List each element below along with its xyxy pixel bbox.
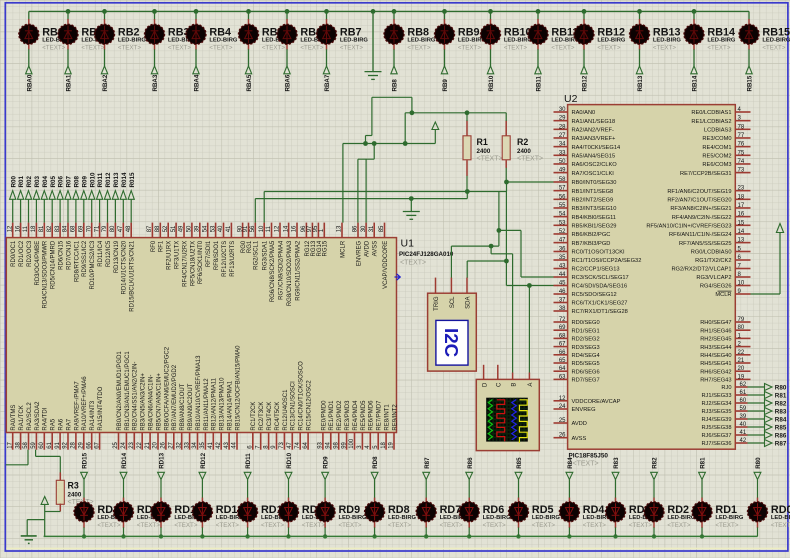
- svg-text:RD15/BCLK/U1RTS/CN21: RD15/BCLK/U1RTS/CN21: [130, 240, 136, 312]
- svg-text:RG6/CN8/SCK2/PMA5: RG6/CN8/SCK2/PMA5: [270, 240, 276, 302]
- svg-text:61: 61: [47, 441, 53, 448]
- svg-text:LED-BIRG: LED-BIRG: [388, 515, 417, 521]
- svg-text:<TEXT>: <TEXT>: [532, 522, 555, 529]
- svg-text:RD15: RD15: [82, 452, 89, 468]
- svg-text:RD7: RD7: [440, 504, 462, 516]
- svg-text:RD0/SEG0: RD0/SEG0: [572, 320, 600, 326]
- svg-text:RB5/CN7/AN5/C1IN+: RB5/CN7/AN5/C1IN+: [156, 373, 162, 431]
- svg-text:RA2/AN2/VREF-: RA2/AN2/VREF-: [572, 128, 614, 134]
- svg-text:RC15/CN12/OSC2: RC15/CN12/OSC2: [307, 380, 313, 431]
- svg-text:RB12: RB12: [582, 75, 589, 91]
- svg-text:RB13: RB13: [637, 75, 644, 91]
- svg-text:RD1/SEG1: RD1/SEG1: [572, 328, 600, 334]
- svg-text:12: 12: [275, 225, 281, 232]
- svg-text:RA15/INT4/TDO: RA15/INT4/TDO: [98, 386, 104, 430]
- svg-text:12: 12: [559, 396, 566, 402]
- svg-text:RC1/T1OSI/CCP2A/SEG32: RC1/T1OSI/CCP2A/SEG32: [572, 258, 642, 264]
- svg-text:RG7/CN9/SDI2/PMA4: RG7/CN9/SDI2/PMA4: [278, 240, 284, 300]
- svg-text:12: 12: [7, 225, 13, 232]
- svg-text:<TEXT>: <TEXT>: [339, 522, 362, 529]
- svg-text:RH0/SEG47: RH0/SEG47: [700, 320, 731, 326]
- svg-text:61: 61: [740, 390, 747, 396]
- svg-text:49: 49: [179, 225, 185, 232]
- svg-text:29: 29: [79, 441, 85, 448]
- svg-text:RB7/KBI3/PGD: RB7/KBI3/PGD: [572, 241, 611, 247]
- svg-text:56: 56: [250, 225, 256, 232]
- svg-text:RF2/U1RX: RF2/U1RX: [167, 241, 173, 270]
- svg-text:RF1: RF1: [159, 240, 165, 252]
- svg-text:26: 26: [559, 433, 566, 439]
- svg-text:R3: R3: [68, 481, 79, 491]
- svg-text:RG1/TX2/CK2: RG1/TX2/CK2: [695, 258, 731, 264]
- svg-text:<TEXT>: <TEXT>: [81, 45, 104, 52]
- svg-text:U1: U1: [401, 238, 415, 250]
- svg-text:RF1/AN6/C2OUT/SEG19: RF1/AN6/C2OUT/SEG19: [667, 189, 731, 195]
- svg-text:RJ3/SEG35: RJ3/SEG35: [701, 409, 731, 415]
- svg-text:36: 36: [559, 247, 566, 253]
- svg-text:AVDD: AVDD: [365, 240, 371, 257]
- svg-text:RB10/AN10/CVREF/PMA13: RB10/AN10/CVREF/PMA13: [196, 355, 202, 431]
- svg-text:76: 76: [738, 142, 745, 148]
- svg-text:<TEXT>: <TEXT>: [300, 45, 323, 52]
- svg-text:LCDBIAS3: LCDBIAS3: [704, 128, 732, 134]
- svg-text:R011: R011: [97, 172, 104, 187]
- svg-text:RC13/CN1/SOSCI: RC13/CN1/SOSCI: [291, 381, 297, 431]
- svg-text:RC14/CN0/T1CK/SOSCO: RC14/CN0/T1CK/SOSCO: [299, 361, 305, 431]
- svg-text:<TEXT>: <TEXT>: [97, 522, 120, 529]
- svg-text:R02: R02: [26, 175, 33, 187]
- svg-text:RB4/CN6/AN4/C1IN-: RB4/CN6/AN4/C1IN-: [149, 375, 155, 431]
- svg-text:RB9: RB9: [458, 26, 480, 38]
- svg-text:91: 91: [55, 441, 61, 448]
- svg-text:74: 74: [295, 441, 301, 448]
- svg-text:R87: R87: [775, 440, 787, 447]
- svg-text:RD3/OC4/PMBE: RD3/OC4/PMBE: [35, 241, 41, 286]
- svg-text:RH5/SEG41: RH5/SEG41: [700, 361, 731, 367]
- svg-text:RA6: RA6: [59, 418, 65, 430]
- svg-text:RE0/PMD0: RE0/PMD0: [321, 400, 327, 431]
- svg-text:VCAP/VDDCORE: VCAP/VDDCORE: [383, 241, 389, 289]
- svg-text:99: 99: [341, 441, 347, 448]
- svg-text:14: 14: [283, 225, 289, 232]
- svg-text:45: 45: [559, 281, 566, 287]
- svg-text:LED-BIRG: LED-BIRG: [667, 515, 696, 521]
- svg-text:PIC24FJ128GA010: PIC24FJ128GA010: [399, 251, 454, 258]
- svg-text:VDDCORE/AVCAP: VDDCORE/AVCAP: [572, 399, 621, 405]
- svg-text:<TEXT>: <TEXT>: [261, 522, 284, 529]
- svg-text:RG2/SCL1: RG2/SCL1: [254, 240, 260, 270]
- svg-text:RD4/SEG4: RD4/SEG4: [572, 353, 600, 359]
- svg-text:21: 21: [738, 358, 745, 364]
- svg-text:55: 55: [559, 203, 566, 209]
- svg-text:RB7: RB7: [340, 26, 362, 38]
- svg-text:RE5/COM2: RE5/COM2: [702, 154, 731, 160]
- svg-text:RB3/INT3/SEG10: RB3/INT3/SEG10: [572, 206, 617, 212]
- svg-text:RE6/PMD6: RE6/PMD6: [369, 400, 375, 431]
- svg-text:RD8: RD8: [372, 456, 379, 469]
- svg-text:RD9: RD9: [323, 456, 330, 469]
- svg-text:RA3/SDA2: RA3/SDA2: [35, 401, 41, 431]
- svg-text:20: 20: [738, 366, 745, 372]
- svg-text:17: 17: [7, 441, 13, 448]
- svg-text:RH2/SEG45: RH2/SEG45: [700, 337, 731, 343]
- svg-text:62: 62: [740, 382, 747, 388]
- svg-text:40: 40: [740, 422, 747, 428]
- svg-text:<TEXT>: <TEXT>: [209, 45, 232, 52]
- svg-text:91: 91: [243, 225, 249, 232]
- svg-text:47: 47: [118, 225, 124, 232]
- svg-text:28: 28: [71, 441, 77, 448]
- svg-text:RC0/T1OSO/T13CKI: RC0/T1OSO/T13CKI: [572, 250, 626, 256]
- svg-text:RE5/PMD5: RE5/PMD5: [361, 400, 367, 431]
- svg-text:82: 82: [47, 225, 53, 232]
- svg-text:72: 72: [559, 317, 566, 323]
- svg-text:<TEXT>: <TEXT>: [551, 45, 574, 52]
- svg-text:D: D: [482, 382, 488, 387]
- svg-text:13: 13: [738, 238, 745, 244]
- svg-text:<TEXT>: <TEXT>: [458, 45, 481, 52]
- svg-text:RD8: RD8: [388, 504, 410, 516]
- svg-text:<TEXT>: <TEXT>: [667, 522, 690, 529]
- svg-text:RD14: RD14: [121, 452, 128, 468]
- svg-text:<TEXT>: <TEXT>: [216, 522, 239, 529]
- svg-text:RB15: RB15: [762, 26, 790, 38]
- svg-text:RD14/U1CTS/CN20: RD14/U1CTS/CN20: [122, 240, 128, 294]
- svg-text:R80: R80: [755, 457, 762, 469]
- svg-text:RF8/SDO1: RF8/SDO1: [214, 240, 220, 270]
- svg-text:RF2/AN7/C1OUT/SEG20: RF2/AN7/C1OUT/SEG20: [667, 198, 731, 204]
- svg-text:LED-BIRG: LED-BIRG: [532, 515, 561, 521]
- svg-text:RA5: RA5: [51, 418, 57, 430]
- svg-text:65: 65: [559, 358, 566, 364]
- svg-text:AVSS: AVSS: [572, 436, 587, 442]
- svg-text:RE0/LCDBIAS1: RE0/LCDBIAS1: [691, 110, 731, 116]
- svg-text:58: 58: [23, 441, 29, 448]
- svg-text:RD2/SEG2: RD2/SEG2: [572, 337, 600, 343]
- svg-text:RC4/T5CK: RC4/T5CK: [275, 402, 281, 431]
- svg-text:<TEXT>: <TEXT>: [653, 45, 676, 52]
- svg-text:86: 86: [353, 225, 359, 232]
- svg-text:RB13/AN13/PMA10: RB13/AN13/PMA10: [220, 377, 226, 431]
- svg-text:RB5/KBI1/SEG29: RB5/KBI1/SEG29: [572, 224, 617, 230]
- svg-text:80: 80: [110, 225, 116, 232]
- svg-text:LED-BIRG: LED-BIRG: [209, 38, 238, 44]
- svg-text:RB11: RB11: [536, 75, 543, 91]
- svg-text:68: 68: [71, 225, 77, 232]
- svg-text:RJ5/SEG38: RJ5/SEG38: [701, 425, 731, 431]
- svg-text:35: 35: [200, 441, 206, 448]
- svg-text:<TEXT>: <TEXT>: [168, 45, 191, 52]
- svg-text:78: 78: [738, 124, 745, 130]
- svg-text:69: 69: [559, 325, 566, 331]
- svg-text:<TEXT>: <TEXT>: [340, 45, 363, 52]
- svg-text:RC1/T2CK: RC1/T2CK: [251, 402, 257, 431]
- svg-text:<TEXT>: <TEXT>: [477, 156, 503, 163]
- svg-text:RJ0: RJ0: [721, 385, 731, 391]
- svg-text:50: 50: [559, 159, 566, 165]
- svg-text:RC7/RX1/DT1/SEG28: RC7/RX1/DT1/SEG28: [572, 309, 628, 315]
- svg-text:60: 60: [39, 441, 45, 448]
- svg-text:41: 41: [740, 430, 747, 436]
- svg-text:<TEXT>: <TEXT>: [707, 45, 730, 52]
- svg-text:RD13: RD13: [159, 452, 166, 468]
- svg-text:<TEXT>: <TEXT>: [388, 522, 411, 529]
- svg-text:R08: R08: [74, 175, 81, 187]
- svg-text:R06: R06: [58, 175, 65, 187]
- svg-text:R81: R81: [700, 457, 707, 469]
- svg-text:LED-BIRG: LED-BIRG: [339, 515, 368, 521]
- svg-text:R84: R84: [567, 457, 574, 469]
- svg-text:RG3/VLCAP2: RG3/VLCAP2: [696, 275, 731, 281]
- svg-text:RB4/KBI0/SEG11: RB4/KBI0/SEG11: [572, 215, 616, 221]
- svg-text:B: B: [511, 383, 517, 387]
- svg-text:33: 33: [559, 150, 566, 156]
- svg-text:21: 21: [145, 441, 151, 448]
- svg-text:RG1: RG1: [247, 240, 253, 253]
- svg-text:68: 68: [559, 333, 566, 339]
- svg-text:RF7/AN5/SS/SEG25: RF7/AN5/SS/SEG25: [679, 241, 731, 247]
- svg-text:R85: R85: [775, 424, 787, 431]
- svg-text:53: 53: [210, 225, 216, 232]
- svg-text:RE3/COM0: RE3/COM0: [702, 136, 731, 142]
- svg-text:<TEXT>: <TEXT>: [440, 522, 463, 529]
- svg-text:70: 70: [86, 225, 92, 232]
- svg-text:77: 77: [738, 133, 745, 139]
- svg-text:79: 79: [102, 225, 108, 232]
- svg-text:RBA2: RBA2: [102, 74, 109, 91]
- svg-text:41: 41: [226, 225, 232, 232]
- svg-text:R86: R86: [467, 457, 474, 469]
- svg-text:A: A: [528, 383, 534, 387]
- svg-text:RG9/CN11/SS2/PMA2: RG9/CN11/SS2/PMA2: [295, 240, 301, 301]
- svg-text:RB1/CN3/AN1/EMUC1/PGC1: RB1/CN3/AN1/EMUC1/PGC1: [125, 351, 131, 431]
- svg-text:11: 11: [23, 225, 29, 232]
- svg-text:R87: R87: [424, 457, 431, 469]
- svg-text:RB12/AN12/PMA11: RB12/AN12/PMA11: [212, 377, 218, 430]
- svg-text:RD5/CN14/PMRD: RD5/CN14/PMRD: [51, 240, 57, 289]
- svg-text:RA10/VREF+/PMA6: RA10/VREF+/PMA6: [82, 376, 88, 431]
- svg-text:RE1/PMD1: RE1/PMD1: [329, 400, 335, 431]
- svg-text:<TEXT>: <TEXT>: [715, 522, 738, 529]
- svg-text:R07: R07: [66, 175, 73, 187]
- svg-text:<TEXT>: <TEXT>: [137, 522, 160, 529]
- svg-text:RJ4/SEG39: RJ4/SEG39: [701, 417, 731, 423]
- svg-text:R82: R82: [775, 400, 787, 407]
- svg-text:57: 57: [559, 186, 566, 192]
- svg-text:RBA0: RBA0: [26, 74, 33, 91]
- svg-text:RB14: RB14: [707, 26, 735, 38]
- svg-text:RB14: RB14: [692, 75, 699, 91]
- svg-text:RD10: RD10: [286, 452, 293, 468]
- svg-text:24: 24: [121, 441, 127, 448]
- svg-text:LED-BIRG: LED-BIRG: [340, 38, 369, 44]
- svg-text:R82: R82: [652, 457, 659, 469]
- svg-text:RB10: RB10: [488, 75, 495, 91]
- svg-text:R01: R01: [18, 175, 25, 187]
- svg-text:RD5/SEG5: RD5/SEG5: [572, 361, 600, 367]
- svg-text:64: 64: [559, 366, 566, 372]
- svg-text:<TEXT>: <TEXT>: [42, 45, 65, 52]
- svg-text:100: 100: [349, 438, 355, 449]
- svg-text:<TEXT>: <TEXT>: [597, 45, 620, 52]
- svg-text:RB15/CN12/OCFB/AN15/PMA0: RB15/CN12/OCFB/AN15/PMA0: [235, 345, 241, 431]
- svg-text:20: 20: [153, 441, 159, 448]
- svg-text:RA5/AN4/SEG15: RA5/AN4/SEG15: [572, 154, 616, 160]
- svg-text:75: 75: [738, 150, 745, 156]
- svg-text:34: 34: [192, 441, 198, 448]
- svg-text:56: 56: [559, 194, 566, 200]
- svg-text:LED-BIRG: LED-BIRG: [597, 38, 626, 44]
- svg-text:RE7/CCP2B/SEG31: RE7/CCP2B/SEG31: [680, 171, 732, 177]
- svg-text:44: 44: [559, 272, 566, 278]
- svg-text:RA1/AN1/SEG18: RA1/AN1/SEG18: [572, 119, 616, 125]
- svg-text:RJ2/SEG34: RJ2/SEG34: [701, 401, 731, 407]
- svg-text:50: 50: [187, 225, 193, 232]
- svg-text:38: 38: [15, 441, 21, 448]
- svg-text:67: 67: [94, 441, 100, 448]
- svg-text:19: 19: [738, 374, 745, 380]
- svg-text:29: 29: [559, 116, 566, 122]
- svg-text:73: 73: [279, 441, 285, 448]
- svg-text:RB2: RB2: [118, 26, 140, 38]
- svg-text:RD6/CN15: RD6/CN15: [59, 240, 65, 270]
- svg-text:PIC18F85J50: PIC18F85J50: [569, 453, 609, 460]
- svg-text:RF13/U2RTS: RF13/U2RTS: [230, 241, 236, 277]
- svg-text:60: 60: [740, 398, 747, 404]
- svg-text:LED-BIRG: LED-BIRG: [504, 38, 533, 44]
- svg-text:11: 11: [266, 225, 272, 232]
- svg-text:92: 92: [63, 441, 69, 448]
- svg-text:RE1/LCDBIAS2: RE1/LCDBIAS2: [691, 119, 731, 125]
- svg-text:C: C: [497, 382, 503, 387]
- svg-text:R2: R2: [517, 137, 528, 147]
- svg-text:53: 53: [559, 220, 566, 226]
- svg-text:RH3/SEG44: RH3/SEG44: [700, 345, 731, 351]
- svg-text:AVSS: AVSS: [373, 241, 379, 257]
- svg-text:R013: R013: [113, 172, 120, 188]
- svg-text:40: 40: [218, 225, 224, 232]
- svg-text:<TEXT>: <TEXT>: [573, 461, 599, 468]
- svg-text:16: 16: [738, 212, 745, 218]
- svg-text:48: 48: [126, 225, 132, 232]
- svg-text:RC5/SDO/SEG12: RC5/SDO/SEG12: [572, 292, 617, 298]
- svg-text:RD7/SEG7: RD7/SEG7: [572, 378, 600, 384]
- svg-text:31: 31: [369, 225, 375, 232]
- svg-text:80: 80: [738, 325, 745, 331]
- svg-text:23: 23: [738, 186, 745, 192]
- svg-text:18: 18: [381, 441, 387, 448]
- svg-text:2400: 2400: [477, 148, 491, 155]
- svg-text:RC6/TX1/CK1/SEG27: RC6/TX1/CK1/SEG27: [572, 301, 628, 307]
- svg-text:R83: R83: [613, 457, 620, 469]
- svg-text:TRIG: TRIG: [434, 296, 440, 311]
- svg-text:RA0/TMS: RA0/TMS: [11, 405, 17, 431]
- svg-text:RE4/PMD4: RE4/PMD4: [353, 400, 359, 431]
- svg-text:52: 52: [163, 225, 169, 232]
- svg-text:SDA: SDA: [466, 297, 472, 309]
- svg-text:RD5: RD5: [532, 504, 554, 516]
- svg-text:30: 30: [559, 107, 566, 113]
- svg-text:RH7/SEG43: RH7/SEG43: [700, 378, 731, 384]
- svg-text:47: 47: [559, 238, 566, 244]
- svg-text:<TEXT>: <TEXT>: [762, 45, 785, 52]
- svg-text:66: 66: [86, 441, 92, 448]
- svg-text:46: 46: [559, 289, 566, 295]
- svg-text:RB4: RB4: [209, 26, 231, 38]
- svg-text:RB2/CN4/SS1/AN2/C2IN-: RB2/CN4/SS1/AN2/C2IN-: [133, 362, 139, 431]
- svg-text:R80: R80: [775, 384, 787, 391]
- svg-text:30: 30: [361, 225, 367, 232]
- svg-text:24: 24: [559, 404, 566, 410]
- svg-text:RA7: RA7: [66, 418, 72, 430]
- svg-text:RF3/U1TX: RF3/U1TX: [175, 241, 181, 269]
- svg-text:93: 93: [318, 441, 324, 448]
- svg-text:LED-BIRG: LED-BIRG: [407, 38, 436, 44]
- svg-text:LED-BIRG: LED-BIRG: [653, 38, 682, 44]
- svg-text:R83: R83: [775, 408, 787, 415]
- svg-text:<TEXT>: <TEXT>: [517, 156, 543, 163]
- svg-text:79: 79: [738, 317, 745, 323]
- svg-text:RBA1: RBA1: [66, 74, 73, 91]
- svg-text:ENVREG: ENVREG: [572, 407, 596, 413]
- svg-text:<TEXT>: <TEXT>: [174, 522, 197, 529]
- svg-text:<TEXT>: <TEXT>: [771, 522, 790, 529]
- svg-text:LED-BIRG: LED-BIRG: [118, 38, 147, 44]
- svg-text:RH6/SEG42: RH6/SEG42: [700, 369, 731, 375]
- svg-text:RC2/CCP1/SEG13: RC2/CCP1/SEG13: [572, 267, 620, 273]
- svg-text:RB0/CN2/AN0/EMUD1/PGD1: RB0/CN2/AN0/EMUD1/PGD1: [117, 351, 123, 431]
- svg-text:RE2/PMD2: RE2/PMD2: [337, 400, 343, 431]
- svg-text:RH1/SEG46: RH1/SEG46: [700, 328, 731, 334]
- svg-text:LED-BIRG: LED-BIRG: [762, 38, 790, 44]
- svg-text:94: 94: [326, 441, 332, 448]
- svg-text:R85: R85: [516, 457, 523, 469]
- svg-text:RG3/SDA1: RG3/SDA1: [263, 240, 269, 270]
- svg-text:LED-BIRG: LED-BIRG: [483, 515, 512, 521]
- svg-text:32: 32: [176, 441, 182, 448]
- svg-text:R84: R84: [775, 416, 787, 423]
- svg-text:RB8: RB8: [392, 79, 399, 92]
- svg-text:43: 43: [559, 264, 566, 270]
- svg-text:RD11: RD11: [245, 453, 252, 469]
- svg-text:RB10: RB10: [504, 26, 532, 38]
- svg-text:SCL: SCL: [450, 296, 456, 308]
- svg-text:RB12: RB12: [597, 26, 625, 38]
- svg-text:42: 42: [740, 438, 747, 444]
- svg-text:RB6/OCFA/AN6/EMUC2/PGC2: RB6/OCFA/AN6/EMUC2/PGC2: [164, 346, 170, 430]
- svg-text:14: 14: [738, 229, 745, 235]
- svg-text:33: 33: [184, 441, 190, 448]
- svg-text:RJ1/SEG33: RJ1/SEG33: [701, 393, 731, 399]
- svg-text:RD4: RD4: [583, 504, 605, 516]
- svg-text:RD6: RD6: [483, 504, 505, 516]
- svg-text:42: 42: [216, 441, 222, 448]
- svg-text:39: 39: [195, 225, 201, 232]
- svg-text:RG0/LCDBIAS0: RG0/LCDBIAS0: [691, 250, 732, 256]
- svg-text:16: 16: [292, 225, 298, 232]
- svg-text:47: 47: [287, 441, 293, 448]
- svg-text:67: 67: [559, 342, 566, 348]
- svg-text:RB9/AN9/C2OUT: RB9/AN9/C2OUT: [188, 383, 194, 430]
- svg-text:R81: R81: [775, 392, 787, 399]
- svg-text:81: 81: [39, 225, 45, 232]
- svg-text:RF0: RF0: [151, 240, 157, 252]
- svg-text:RE9/INT2: RE9/INT2: [392, 404, 398, 431]
- svg-text:71: 71: [94, 225, 100, 232]
- svg-text:RG8/CN10/SDO2/PMA3: RG8/CN10/SDO2/PMA3: [287, 240, 293, 306]
- svg-text:I2C: I2C: [441, 328, 462, 358]
- svg-text:54: 54: [559, 212, 566, 218]
